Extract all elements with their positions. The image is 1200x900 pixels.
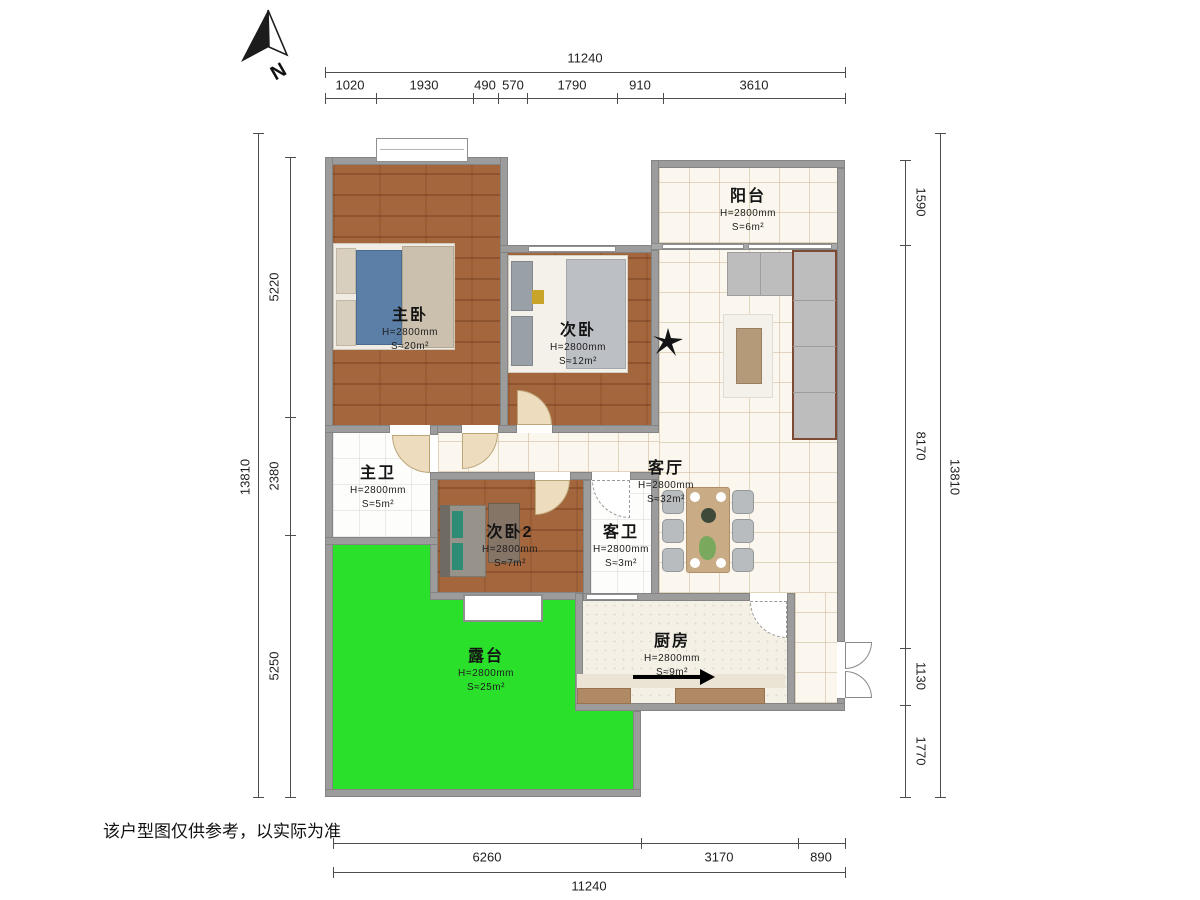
terrace-floor — [575, 711, 633, 789]
dim-left-total: 13810 — [238, 459, 253, 495]
dim-tick — [285, 535, 296, 536]
dim-left-seg: 5220 — [267, 273, 282, 302]
dim-right-seg: 8170 — [914, 432, 929, 461]
dim-tick — [845, 93, 846, 104]
dim-bottom-total: 11240 — [571, 879, 606, 894]
dim-left-seg: 2380 — [267, 462, 282, 491]
wall — [325, 537, 438, 545]
wall — [325, 425, 390, 433]
room-label-living-room: 客厅 H=2800mm S≈32m² — [638, 460, 694, 505]
sofa-cushion-line — [760, 253, 761, 295]
dim-tick — [900, 797, 911, 798]
dim-tick — [285, 417, 296, 418]
dim-top-total: 11240 — [567, 51, 602, 66]
terrace-floor — [333, 545, 438, 789]
ceiling-fan-icon — [650, 324, 686, 360]
terrace-floor — [438, 600, 575, 789]
wall — [787, 593, 795, 711]
dimension-line — [333, 843, 845, 844]
pillow — [511, 316, 533, 366]
dim-tick — [285, 157, 296, 158]
dim-right-seg: 1770 — [914, 737, 929, 766]
foyer-floor — [795, 593, 837, 703]
dimension-line — [325, 72, 845, 73]
dim-right-seg: 1590 — [914, 188, 929, 217]
dim-bottom-seg: 890 — [810, 850, 832, 865]
sofa-cushion-line — [793, 300, 836, 301]
dim-tick — [641, 838, 642, 849]
dim-tick — [376, 93, 377, 104]
wall — [575, 703, 845, 711]
bedroom2-window — [528, 246, 616, 252]
dim-tick — [900, 160, 911, 161]
wall — [583, 480, 591, 600]
floor-plan: N — [0, 0, 1200, 900]
dining-chair — [732, 519, 754, 543]
dim-top-seg: 3610 — [740, 78, 769, 93]
coffee-table — [736, 328, 762, 384]
headboard — [440, 505, 450, 577]
dim-tick — [473, 93, 474, 104]
dim-tick — [253, 797, 264, 798]
wall — [325, 789, 641, 797]
room-label-balcony: 阳台 H=2800mm S=6m² — [720, 188, 776, 233]
dim-tick — [325, 93, 326, 104]
north-compass-icon: N — [228, 4, 310, 92]
balcony-sliding-door — [748, 244, 832, 249]
wall — [325, 157, 333, 797]
dim-tick — [798, 838, 799, 849]
dimension-line — [905, 160, 906, 797]
pillow — [452, 543, 463, 570]
wall — [633, 711, 641, 797]
terrace-bay-window — [463, 594, 543, 622]
room-label-terrace: 露台 H=2800mm S≈25m² — [458, 648, 514, 693]
dim-tick — [900, 705, 911, 706]
kitchen-window — [586, 594, 638, 600]
dim-tick — [285, 797, 296, 798]
annotation-arrow-head — [700, 669, 715, 685]
dim-tick — [845, 67, 846, 78]
dim-tick — [935, 133, 946, 134]
north-label: N — [267, 59, 291, 85]
dimension-line — [333, 872, 845, 873]
room-label-master-bath: 主卫 H=2800mm S=5m² — [350, 465, 406, 510]
pillow — [336, 248, 356, 294]
wall — [430, 472, 535, 480]
dim-right-total: 13810 — [948, 459, 963, 495]
entry-door-leaf — [845, 642, 872, 669]
dim-tick — [527, 93, 528, 104]
dim-top-seg: 1020 — [336, 78, 365, 93]
wall — [500, 157, 508, 433]
dim-top-seg: 1790 — [558, 78, 587, 93]
dimension-line — [325, 98, 845, 99]
dim-tick — [935, 797, 946, 798]
sofa-cushion-line — [793, 392, 836, 393]
dim-top-seg: 570 — [502, 78, 524, 93]
wall — [552, 425, 659, 433]
dim-tick — [253, 133, 264, 134]
dim-bottom-seg: 3170 — [705, 850, 734, 865]
plant — [699, 536, 716, 560]
room-label-bedroom2: 次卧 H=2800mm S≈12m² — [550, 322, 606, 367]
room-label-bedroom3: 次卧2 H=2800mm S≈7m² — [482, 524, 538, 569]
dim-tick — [617, 93, 618, 104]
plate — [716, 558, 726, 568]
wall — [498, 425, 517, 433]
dining-chair — [662, 519, 684, 543]
dim-top-seg: 910 — [629, 78, 651, 93]
dim-tick — [900, 245, 911, 246]
room-label-guest-bath: 客卫 H=2800mm S≈3m² — [593, 524, 649, 569]
dining-chair — [662, 548, 684, 572]
dim-tick — [900, 648, 911, 649]
dining-chair — [732, 490, 754, 514]
annotation-arrow — [633, 675, 703, 679]
wall — [651, 160, 845, 168]
dim-tick — [498, 93, 499, 104]
wall — [837, 168, 845, 642]
plate — [716, 492, 726, 502]
dim-bottom-seg: 6260 — [473, 850, 502, 865]
dim-tick — [333, 867, 334, 878]
plant-pot — [701, 508, 716, 523]
disclaimer-text: 该户型图仅供参考，以实际为准 — [103, 817, 341, 842]
room-label-kitchen: 厨房 H=2800mm S≈9m² — [644, 633, 700, 678]
pillow — [511, 261, 533, 311]
wall — [430, 425, 438, 435]
dim-tick — [663, 93, 664, 104]
dim-top-seg: 490 — [474, 78, 496, 93]
wall — [570, 472, 592, 480]
pillow — [452, 511, 463, 538]
entry-door-leaf — [845, 671, 872, 698]
cushion — [532, 290, 544, 304]
balcony-sliding-door — [662, 244, 744, 249]
pillow — [336, 300, 356, 346]
dim-tick — [325, 67, 326, 78]
dim-tick — [845, 867, 846, 878]
dining-chair — [732, 548, 754, 572]
bay-window — [376, 138, 468, 162]
dimension-line — [940, 133, 941, 797]
dim-left-seg: 5250 — [267, 652, 282, 681]
sofa-cushion-line — [793, 346, 836, 347]
dim-tick — [845, 838, 846, 849]
room-label-master-bedroom: 主卧 H=2800mm S≈20m² — [382, 307, 438, 352]
plate — [690, 558, 700, 568]
dimension-line — [290, 157, 291, 797]
kitchen-counter — [577, 688, 631, 704]
dim-right-seg: 1130 — [914, 662, 929, 690]
dim-top-seg: 1930 — [410, 78, 439, 93]
dimension-line — [258, 133, 259, 797]
sofa-corner — [792, 250, 837, 440]
wall — [651, 160, 659, 250]
kitchen-counter — [675, 688, 765, 704]
